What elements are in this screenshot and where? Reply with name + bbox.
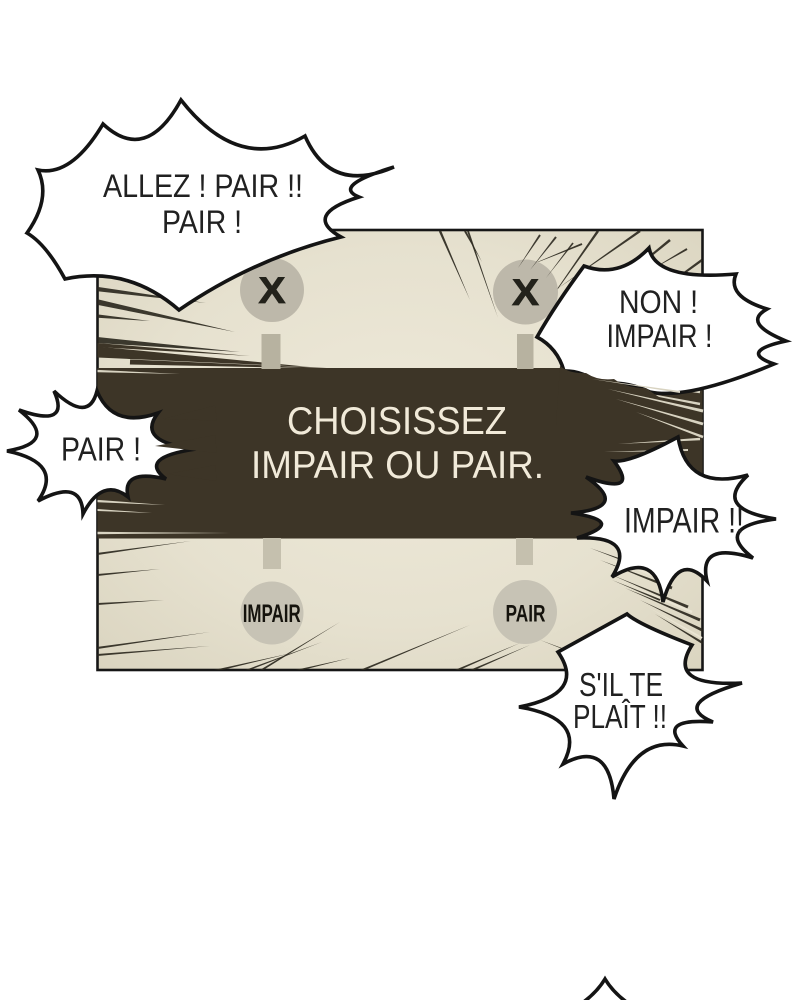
svg-text:X: X	[512, 272, 539, 313]
svg-text:PAIR !: PAIR !	[162, 204, 242, 240]
svg-text:PAIR !: PAIR !	[61, 431, 141, 468]
svg-text:CHOISISSEZ: CHOISISSEZ	[287, 400, 507, 443]
svg-text:PLAÎT !!: PLAÎT !!	[573, 698, 667, 735]
svg-text:X: X	[259, 270, 286, 311]
svg-text:ALLEZ ! PAIR !!: ALLEZ ! PAIR !!	[103, 168, 303, 204]
svg-text:NON !: NON !	[619, 284, 698, 320]
svg-text:IMPAIR OU PAIR.: IMPAIR OU PAIR.	[251, 444, 544, 487]
svg-text:IMPAIR !!: IMPAIR !!	[624, 502, 744, 541]
svg-text:IMPAIR: IMPAIR	[243, 600, 301, 628]
svg-text:IMPAIR !: IMPAIR !	[607, 318, 713, 354]
svg-text:PAIR: PAIR	[506, 601, 546, 628]
